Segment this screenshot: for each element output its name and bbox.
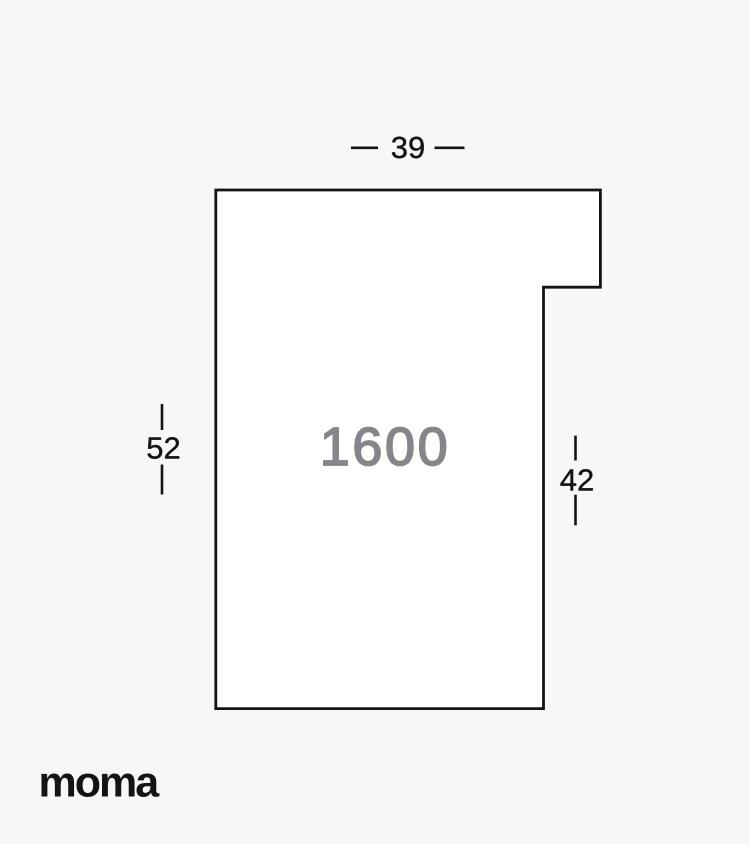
svg-text:42: 42 xyxy=(560,462,594,497)
svg-text:39: 39 xyxy=(391,130,425,165)
svg-text:1600: 1600 xyxy=(320,417,451,477)
svg-text:52: 52 xyxy=(146,431,180,466)
svg-text:moma: moma xyxy=(39,759,161,807)
